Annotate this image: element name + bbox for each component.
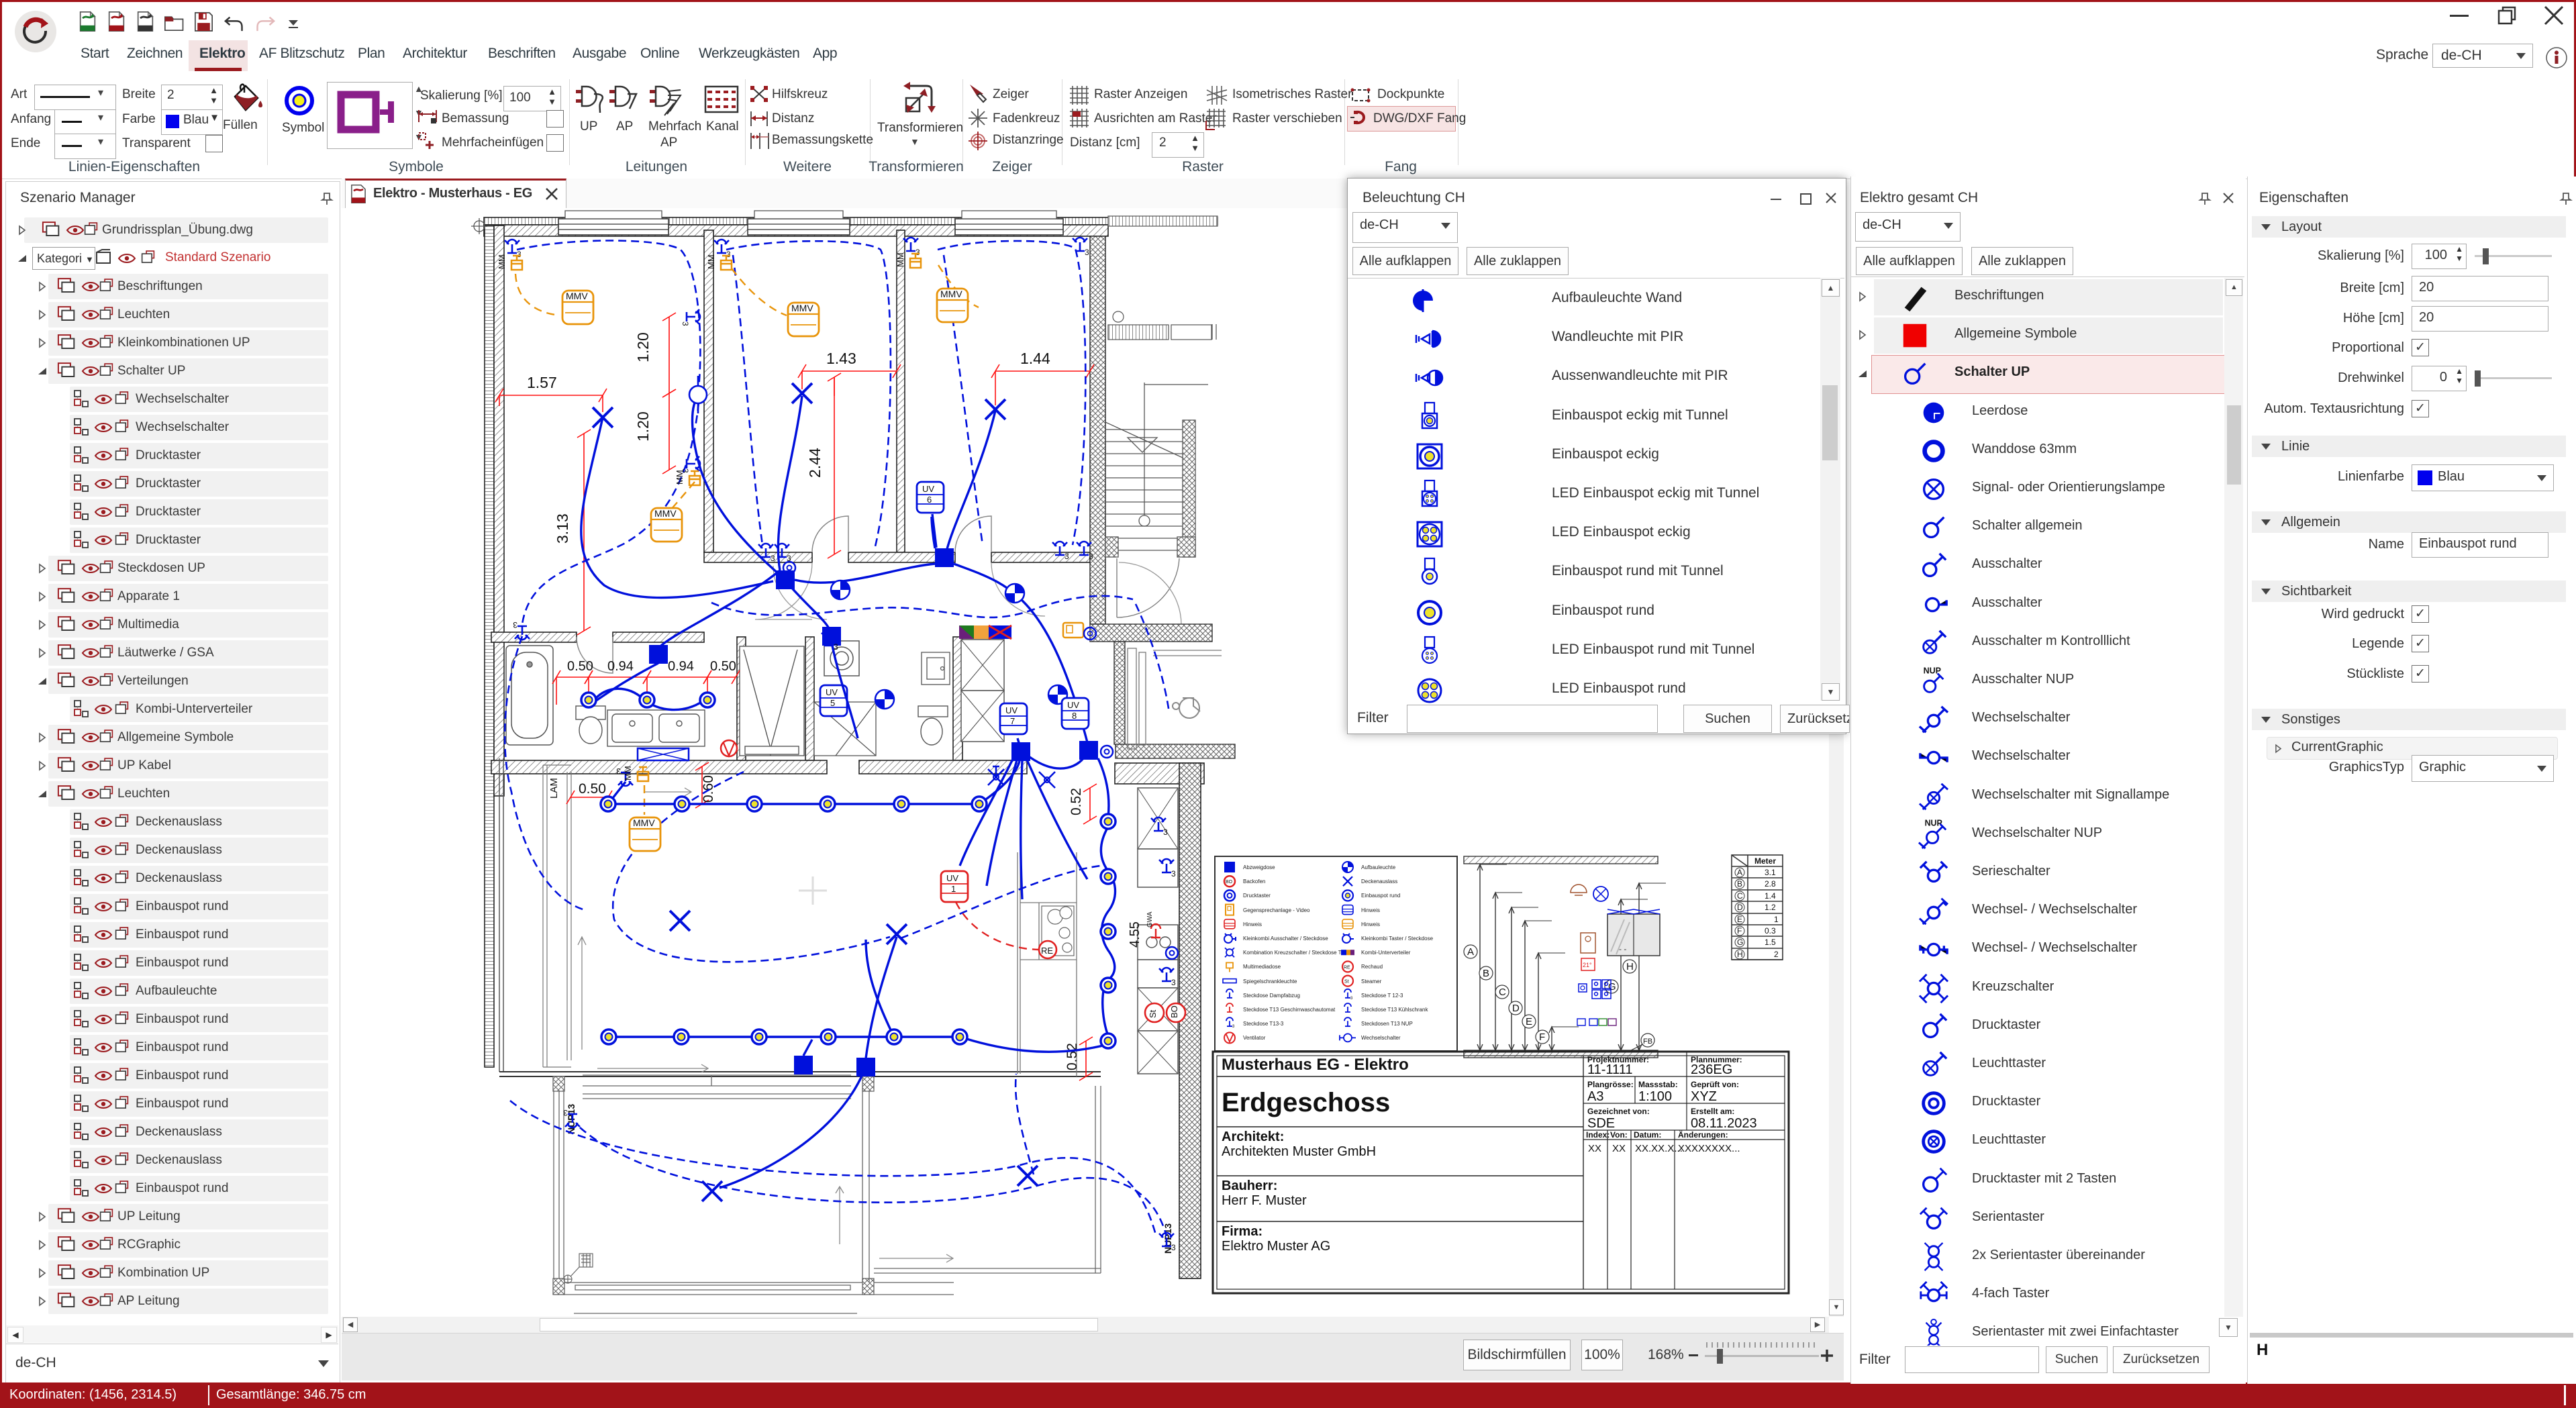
svg-text:Steckdose T13-3: Steckdose T13-3: [1243, 1021, 1284, 1027]
svg-text:C: C: [1499, 987, 1506, 998]
svg-text:1.20: 1.20: [634, 332, 652, 362]
svg-text:NUP: NUP: [1925, 819, 1942, 828]
svg-text:Gegensprechanlage - Video: Gegensprechanlage - Video: [1243, 907, 1310, 913]
svg-text:H: H: [1737, 950, 1743, 959]
svg-text:Kombination Kreuzschalter / St: Kombination Kreuzschalter / Steckdose T1…: [1243, 950, 1348, 956]
svg-text:Ventilator: Ventilator: [1243, 1035, 1266, 1041]
svg-text:Wechselschalter: Wechselschalter: [1361, 1035, 1401, 1041]
svg-text:XX.XX.X...: XX.XX.X...: [1635, 1143, 1683, 1154]
svg-text:Steckdose T13 Kühlschrank: Steckdose T13 Kühlschrank: [1361, 1007, 1428, 1013]
svg-text:Gezeichnet von:: Gezeichnet von:: [1587, 1107, 1650, 1116]
svg-text:LAM: LAM: [548, 778, 560, 799]
svg-text:1.57: 1.57: [527, 374, 557, 391]
svg-text:Spiegelschrankleuchte: Spiegelschrankleuchte: [1243, 978, 1297, 985]
svg-text:8: 8: [1072, 711, 1077, 721]
svg-text:Aufbauleuchte: Aufbauleuchte: [1361, 864, 1396, 870]
svg-text:Herr F. Muster: Herr F. Muster: [1222, 1193, 1307, 1208]
svg-text:Datum:: Datum:: [1634, 1130, 1661, 1140]
svg-text:BO: BO: [1169, 1005, 1179, 1018]
svg-text:E: E: [1526, 1016, 1532, 1027]
svg-text:SDE: SDE: [1587, 1116, 1615, 1131]
svg-text:2: 2: [1774, 950, 1779, 959]
svg-text:11-1111: 11-1111: [1587, 1062, 1632, 1077]
svg-text:21°: 21°: [1583, 962, 1592, 968]
svg-text:- -: - -: [1619, 944, 1626, 954]
svg-text:1:100: 1:100: [1638, 1089, 1672, 1104]
svg-text:3.13: 3.13: [554, 513, 571, 544]
svg-text:1.2: 1.2: [1765, 903, 1776, 912]
svg-text:RE: RE: [1041, 946, 1053, 956]
svg-text:Abzweigdose: Abzweigdose: [1243, 864, 1275, 870]
svg-text:Backofen: Backofen: [1243, 878, 1265, 885]
svg-text:XYZ: XYZ: [1691, 1089, 1717, 1104]
svg-text:F: F: [1737, 926, 1742, 936]
svg-text:MMV: MMV: [566, 291, 588, 301]
svg-text:BO: BO: [1226, 880, 1233, 885]
svg-text:Geprüft von:: Geprüft von:: [1691, 1080, 1739, 1089]
svg-text:Kleinkombi Taster / Steckdose: Kleinkombi Taster / Steckdose: [1361, 936, 1434, 942]
svg-text:5: 5: [830, 698, 835, 708]
svg-text:G: G: [1737, 938, 1743, 947]
svg-text:0.60: 0.60: [701, 775, 716, 803]
svg-text:Deckenauslass: Deckenauslass: [1361, 878, 1397, 885]
svg-text:St: St: [1148, 1009, 1158, 1018]
svg-text:FB: FB: [1643, 1038, 1652, 1046]
svg-text:Einbauspot rund: Einbauspot rund: [1361, 893, 1400, 899]
svg-text:NUP: NUP: [1924, 666, 1941, 676]
svg-text:GWA: GWA: [1146, 911, 1154, 927]
svg-text:XXXXXXXX...: XXXXXXXX...: [1678, 1143, 1740, 1154]
svg-text:0.52: 0.52: [1064, 1043, 1080, 1070]
svg-text:1: 1: [951, 884, 956, 894]
svg-text:Steamer: Steamer: [1361, 978, 1382, 985]
svg-text:1: 1: [1774, 915, 1779, 924]
svg-text:2.8: 2.8: [1765, 879, 1776, 889]
svg-text:XX: XX: [1612, 1143, 1626, 1154]
svg-text:1.43: 1.43: [826, 350, 856, 367]
svg-text:1.4: 1.4: [1765, 891, 1776, 901]
svg-text:A3: A3: [1587, 1089, 1603, 1104]
svg-text:D: D: [1512, 1003, 1520, 1014]
svg-text:Hinweis: Hinweis: [1243, 921, 1262, 927]
svg-text:Plangrösse:: Plangrösse:: [1587, 1080, 1634, 1089]
svg-text:MMV: MMV: [940, 289, 962, 299]
svg-text:Index:: Index:: [1586, 1130, 1609, 1140]
svg-text:Bauherr:: Bauherr:: [1222, 1178, 1277, 1193]
svg-text:6: 6: [927, 495, 932, 505]
svg-text:Architekt:: Architekt:: [1222, 1129, 1284, 1144]
svg-text:1.20: 1.20: [634, 411, 652, 442]
svg-text:MMV: MMV: [633, 817, 655, 828]
svg-text:E: E: [1737, 915, 1742, 924]
svg-text:UV: UV: [826, 687, 838, 697]
svg-text:Änderungen:: Änderungen:: [1678, 1129, 1728, 1140]
svg-text:Multimediadose: Multimediadose: [1243, 964, 1281, 970]
svg-text:0.50: 0.50: [579, 781, 606, 797]
svg-text:3.1: 3.1: [1765, 868, 1776, 877]
svg-text:Musterhaus EG - Elektro: Musterhaus EG - Elektro: [1222, 1056, 1409, 1074]
svg-text:Kombi-Unterverteiler: Kombi-Unterverteiler: [1361, 950, 1411, 956]
svg-text:UV: UV: [1067, 700, 1079, 710]
svg-text:0.94: 0.94: [668, 659, 694, 674]
svg-text:A: A: [1737, 868, 1742, 877]
svg-text:0.50: 0.50: [710, 659, 736, 674]
svg-text:St: St: [1344, 980, 1349, 985]
svg-text:UV: UV: [1005, 705, 1018, 715]
svg-text:0.94: 0.94: [607, 659, 634, 674]
svg-text:Firma:: Firma:: [1222, 1224, 1262, 1239]
svg-text:C: C: [1737, 891, 1743, 901]
svg-text:Massstab:: Massstab:: [1638, 1080, 1678, 1089]
svg-text:MMV: MMV: [654, 508, 677, 519]
svg-text:RE: RE: [1344, 965, 1350, 970]
svg-text:Steckdose T 12-3: Steckdose T 12-3: [1361, 993, 1403, 999]
svg-text:Kleinkombi Ausschalter / Steck: Kleinkombi Ausschalter / Steckdose: [1243, 936, 1328, 942]
svg-text:Erstellt am:: Erstellt am:: [1691, 1107, 1734, 1116]
svg-text:1.5: 1.5: [1765, 938, 1776, 947]
svg-text:0.52: 0.52: [1069, 788, 1084, 815]
svg-text:XX: XX: [1588, 1143, 1601, 1154]
svg-text:Hinweis: Hinweis: [1361, 907, 1380, 913]
svg-text:H: H: [1626, 961, 1634, 972]
svg-text:B: B: [1737, 879, 1742, 889]
svg-text:Meter: Meter: [1754, 856, 1776, 866]
svg-text:0.50: 0.50: [567, 659, 593, 674]
svg-text:236EG: 236EG: [1691, 1062, 1732, 1077]
svg-text:G: G: [1608, 981, 1616, 993]
svg-text:Rechaud: Rechaud: [1361, 964, 1383, 970]
svg-text:B: B: [1483, 968, 1489, 979]
svg-text:Elektro Muster AG: Elektro Muster AG: [1222, 1239, 1330, 1254]
svg-text:UV: UV: [922, 484, 934, 494]
svg-text:Erdgeschoss: Erdgeschoss: [1222, 1088, 1390, 1117]
svg-text:UV: UV: [946, 873, 958, 883]
svg-text:08.11.2023: 08.11.2023: [1691, 1116, 1757, 1131]
svg-text:Steckdosen T13 NUP: Steckdosen T13 NUP: [1361, 1021, 1413, 1027]
svg-text:A: A: [1467, 946, 1474, 958]
svg-text:Hinweis: Hinweis: [1361, 921, 1380, 927]
svg-text:1.44: 1.44: [1020, 350, 1050, 367]
svg-text:Drucktaster: Drucktaster: [1243, 893, 1271, 899]
svg-text:4.55: 4.55: [1128, 921, 1142, 948]
svg-text:2.44: 2.44: [806, 448, 824, 478]
svg-text:0.3: 0.3: [1765, 926, 1776, 936]
svg-text:Von:: Von:: [1610, 1130, 1628, 1140]
svg-text:Steckdose Dampfabzug: Steckdose Dampfabzug: [1243, 993, 1300, 999]
svg-text:Steckdose T13 Geschirrwaschaut: Steckdose T13 Geschirrwaschautomat: [1243, 1007, 1336, 1013]
svg-text:D: D: [1737, 903, 1743, 912]
svg-text:Architekten Muster GmbH: Architekten Muster GmbH: [1222, 1144, 1376, 1159]
svg-text:7: 7: [1010, 716, 1015, 726]
svg-text:F: F: [1539, 1032, 1545, 1043]
svg-text:MMV: MMV: [791, 303, 813, 313]
